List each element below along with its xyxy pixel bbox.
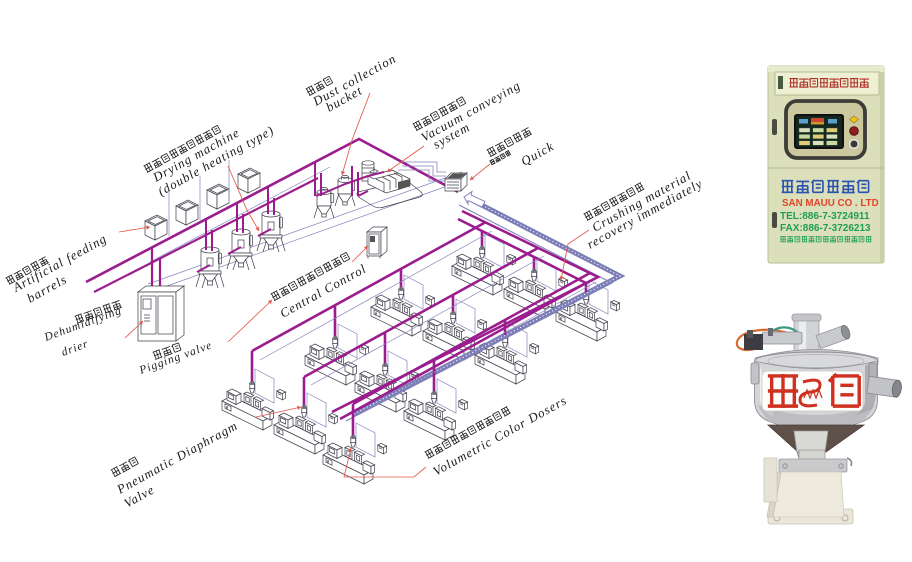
svg-text:SAN MAUU CO . LTD: SAN MAUU CO . LTD — [782, 198, 879, 209]
svg-text:Pigging valve: Pigging valve — [137, 339, 214, 377]
svg-text:Vacuum conveying: Vacuum conveying — [419, 78, 523, 144]
svg-text:drier: drier — [60, 338, 90, 359]
svg-text:recovery immediately: recovery immediately — [585, 176, 706, 251]
svg-text:FAX:886-7-3726213: FAX:886-7-3726213 — [780, 223, 871, 234]
svg-text:TEL:886-7-3724911: TEL:886-7-3724911 — [780, 211, 870, 222]
svg-text:Quick: Quick — [519, 139, 557, 168]
